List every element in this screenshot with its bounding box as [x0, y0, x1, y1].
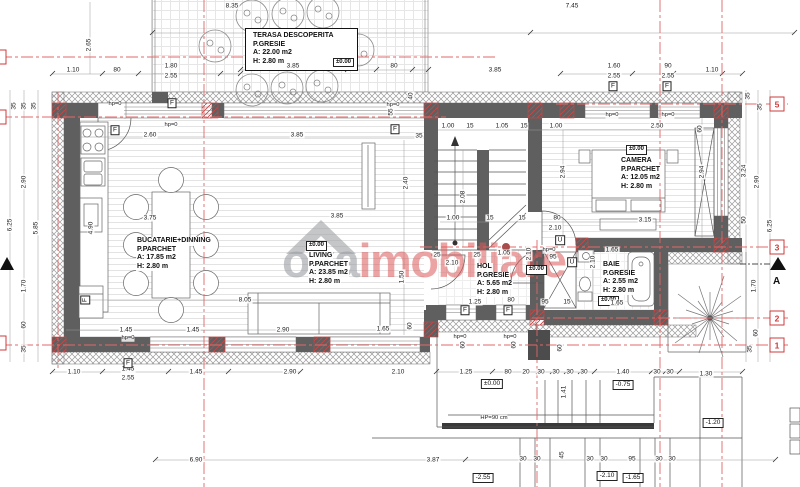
window-tag: F: [168, 98, 177, 108]
dimension-label: 1.00: [446, 215, 461, 222]
room-label-terasa: TERASA DESCOPERITA P.GRESIE A: 22.00 m2 …: [245, 28, 358, 71]
window-tag: F: [663, 81, 672, 91]
dimension-label: 1.45: [186, 327, 201, 334]
dimension-label: 15: [519, 123, 528, 130]
room-area: A: 22.00 m2: [252, 49, 293, 58]
annotation: hp=0: [121, 335, 134, 342]
dimension-label: 80: [552, 215, 561, 222]
window-tag: F: [80, 296, 90, 305]
dimension-label: 1.60: [607, 63, 622, 70]
dimension-label: 90: [663, 63, 672, 70]
dimension-label: 2.94: [699, 165, 706, 180]
room-title: TERASA DESCOPERITA: [252, 32, 335, 41]
dimension-label: 1.25: [459, 369, 474, 376]
dimension-label: 7.45: [565, 3, 580, 10]
dimension-label: 1.25: [468, 299, 483, 306]
dimension-label: 60: [407, 321, 414, 330]
room-area: A: 12.05 m2: [620, 174, 661, 183]
dimension-label: 60: [697, 124, 704, 133]
level-badge: ±0.00: [626, 145, 647, 155]
porch-and-tree: [668, 252, 752, 357]
annotation: hp=0: [386, 102, 399, 109]
dimension-label: 1.05: [497, 250, 512, 257]
dimension-label: 2.90: [21, 175, 28, 190]
dimension-label: 30: [565, 369, 574, 376]
annotation: hp=0: [503, 334, 516, 341]
dimension-label: 1.05: [495, 123, 510, 130]
axis-marker: 5: [770, 97, 785, 112]
dimension-label: 2.50: [650, 123, 665, 130]
dimension-label: 15: [465, 123, 474, 130]
room-floor: P.GRESIE: [252, 41, 286, 50]
dimension-label: 95: [627, 456, 636, 463]
room-height: H: 2.80 m: [252, 58, 285, 67]
dimension-label: 1.10: [66, 67, 81, 74]
dimension-label: 1.45: [189, 369, 204, 376]
room-height: H: 2.80 m: [136, 263, 169, 272]
dimension-label: 30: [585, 456, 594, 463]
dimension-label: 35: [745, 91, 752, 100]
level-tag: -1.65: [623, 473, 644, 483]
level-tag: ±0.00: [481, 379, 503, 389]
dimension-label: 20: [521, 369, 530, 376]
dimension-label: 2.10: [445, 260, 460, 267]
dimension-label: 3.85: [330, 213, 345, 220]
dimension-label: 1.80: [164, 63, 179, 70]
dimension-label: 1.10: [705, 67, 720, 74]
dimension-label: 1.65: [376, 326, 391, 333]
dimension-label: 95: [540, 299, 549, 306]
room-floor: P.GRESIE: [476, 272, 510, 281]
dimension-label: 5.85: [33, 221, 40, 236]
dimension-label: 1.45: [119, 327, 134, 334]
room-height: H: 2.80 m: [602, 287, 635, 296]
window-tag: F: [124, 358, 133, 368]
dimension-label: 1.40: [616, 369, 631, 376]
annotation: HP=90 cm: [480, 415, 507, 422]
dimension-label: 80: [389, 63, 398, 70]
window-tag: F: [609, 81, 618, 91]
dimension-label: 30: [579, 369, 588, 376]
axis-marker: 1: [770, 338, 785, 353]
dimension-label: 25: [472, 252, 481, 259]
dimension-label: 3.24: [741, 164, 748, 179]
dimension-label: 1.50: [399, 270, 406, 285]
level-tag: -1.20: [703, 418, 724, 428]
window-tag: F: [461, 305, 470, 315]
dimension-label: 4.90: [88, 221, 95, 236]
dimension-label: 15: [562, 299, 571, 306]
window-tag: F: [391, 124, 400, 134]
annotation: hp=0: [542, 247, 555, 254]
dimension-label: 30: [665, 369, 674, 376]
dimension-label: 6.25: [767, 219, 774, 234]
dimension-label: 1.00: [549, 123, 564, 130]
room-title: BAIE: [602, 261, 621, 270]
dimension-label: 35: [21, 101, 28, 110]
dimension-label: 60: [511, 340, 518, 349]
dimension-label: 2.10: [590, 255, 597, 270]
room-label-hol: ±0.00 HOL P.GRESIE A: 5.65 m2 H: 2.80 m: [476, 263, 513, 297]
axis-marker: [0, 336, 7, 351]
dimension-label: 2.55: [164, 73, 179, 80]
staircase: [432, 136, 528, 250]
dimension-label: 80: [503, 369, 512, 376]
dimension-label: 30: [599, 456, 608, 463]
level-tag: -2.55: [473, 473, 494, 483]
dimension-label: 8.05: [238, 297, 253, 304]
dimension-label: 45: [559, 450, 566, 459]
living-furniture: [248, 143, 390, 334]
dimension-label: 60: [21, 320, 28, 329]
dimension-label: 3.85: [290, 132, 305, 139]
annotation: hp=0: [164, 122, 177, 129]
level-tag: -2.10: [597, 471, 618, 481]
annotation: hp=0: [605, 112, 618, 119]
room-area: A: 5.65 m2: [476, 280, 513, 289]
dimension-label: 60: [557, 343, 564, 352]
level-tag: -0.75: [613, 380, 634, 390]
dimension-label: 2.55: [607, 73, 622, 80]
room-title: HOL: [476, 263, 493, 272]
window-tag: U: [567, 257, 577, 267]
dimension-label: 1.65: [610, 300, 625, 307]
annotation: hp=0: [453, 334, 466, 341]
dimension-label: 80: [112, 67, 121, 74]
room-title: LIVING: [308, 252, 333, 261]
room-floor: P.PARCHET: [620, 166, 661, 175]
room-area: A: 23.85 m2: [308, 269, 349, 278]
dimension-label: 2.55: [661, 73, 676, 80]
dimension-label: 2.10: [391, 369, 406, 376]
dimension-label: 30: [532, 456, 541, 463]
dimension-label: 1.70: [751, 279, 758, 294]
dimension-label: 1.00: [441, 123, 456, 130]
room-label-baie: ±0.00 BAIE P.GRESIE A: 2.55 m2 H: 2.80 m: [602, 261, 639, 295]
dimension-label: 2.10: [526, 247, 533, 262]
dimension-label: 30: [667, 456, 676, 463]
level-badge: ±0.00: [526, 265, 547, 275]
dimension-label: 2.90: [283, 369, 298, 376]
window-tag: U: [555, 235, 565, 245]
dimension-label: 3.87: [426, 457, 441, 464]
dimension-label: 15: [485, 215, 494, 222]
room-floor: P.GRESIE: [602, 270, 636, 279]
dimension-label: 2.90: [754, 175, 761, 190]
dimension-label: 2.10: [548, 225, 563, 232]
room-height: H: 2.80 m: [620, 183, 653, 192]
axis-marker: [0, 50, 7, 65]
dimension-label: 3.75: [143, 215, 158, 222]
window-tag: F: [504, 305, 513, 315]
dimension-label: 2.94: [560, 165, 567, 180]
dimension-label: 30: [551, 369, 560, 376]
dimension-label: 3.85: [488, 67, 503, 74]
room-title: CAMERA: [620, 157, 653, 166]
dimension-label: 2.08: [460, 190, 467, 205]
dimension-label: 35: [21, 344, 28, 353]
floor-plan: oxaimobiliare TERASA DESCOPERITA P.GRESI…: [0, 0, 800, 487]
dimension-label: 8.35: [225, 3, 240, 10]
axis-marker: [0, 110, 7, 125]
dimension-label: 35: [11, 101, 18, 110]
dimension-label: 3.85: [286, 63, 301, 70]
dimension-lines: [10, 2, 795, 460]
dimension-label: 80: [506, 297, 515, 304]
level-badge: ±0.00: [306, 241, 327, 251]
dimension-label: 35: [414, 133, 423, 140]
dimension-label: 2.40: [403, 176, 410, 191]
dimension-label: 30: [654, 456, 663, 463]
dimension-label: 1.41: [561, 385, 568, 400]
room-label-camera: ±0.00 CAMERA P.PARCHET A: 12.05 m2 H: 2.…: [620, 157, 661, 191]
room-height: H: 2.80 m: [308, 278, 341, 287]
dimension-label: 95: [548, 254, 557, 261]
dimension-label: 30: [536, 369, 545, 376]
dimension-label: 6.90: [189, 457, 204, 464]
dimension-label: 2.55: [121, 375, 136, 382]
room-floor: P.PARCHET: [308, 261, 349, 270]
annotation: hp=0: [661, 112, 674, 119]
dimension-label: 3.15: [638, 217, 653, 224]
dimension-label: 2.90: [276, 327, 291, 334]
room-area: A: 2.55 m2: [602, 278, 639, 287]
dimension-label: 30: [652, 369, 661, 376]
room-title: BUCATARIE+DINNING: [136, 237, 212, 246]
dimension-label: 1.65: [605, 247, 620, 254]
dimension-label: 1.10: [67, 369, 82, 376]
dimension-label: 1.70: [21, 279, 28, 294]
dimension-label: 50: [741, 215, 748, 224]
dimension-label: 35: [31, 101, 38, 110]
dimension-label: 2.60: [143, 132, 158, 139]
dimension-label: 15: [517, 215, 526, 222]
dimension-label: 1.30: [699, 371, 714, 378]
dimension-label: 6.25: [7, 218, 14, 233]
annotation: hp=0: [108, 101, 121, 108]
dimension-label: 25: [432, 252, 441, 259]
axis-marker: 3: [770, 240, 785, 255]
dimension-label: 35: [757, 102, 764, 111]
dimension-label: 60: [460, 340, 467, 349]
window-tag: F: [111, 125, 120, 135]
dimension-label: 30: [518, 456, 527, 463]
room-label-living: ±0.00 LIVING P.PARCHET A: 23.85 m2 H: 2.…: [308, 252, 349, 286]
room-floor: P.PARCHET: [136, 246, 177, 255]
dimension-label: 2.65: [86, 38, 93, 53]
dimension-label: 55: [388, 107, 395, 116]
room-height: H: 2.80 m: [476, 289, 509, 298]
level-badge: ±0.00: [333, 58, 354, 68]
room-label-bucatarie: BUCATARIE+DINNING P.PARCHET A: 17.85 m2 …: [136, 237, 212, 271]
dimension-label: 60: [753, 328, 760, 337]
room-area: A: 17.85 m2: [136, 254, 177, 263]
dimension-label: 40: [408, 91, 415, 100]
dimension-label: 35: [747, 344, 754, 353]
axis-marker: 2: [770, 311, 785, 326]
section-letter: A: [773, 276, 780, 287]
